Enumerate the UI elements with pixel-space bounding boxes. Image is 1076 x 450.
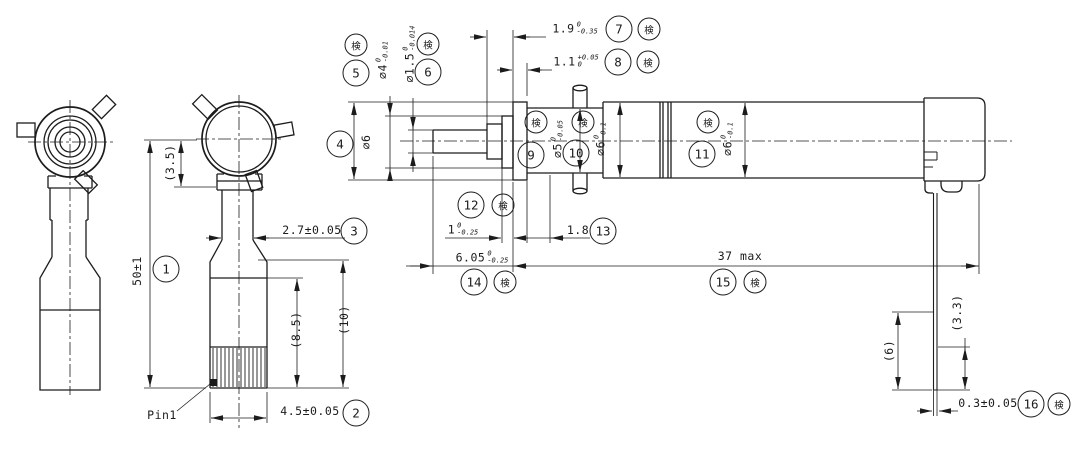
engineering-drawing-canvas: 50±1 (3.5) 2.7±0.05 4.5±0.05 (8.5) (10) …	[0, 0, 1076, 450]
side-view-short-tabs	[193, 95, 294, 192]
dim-dia4: ⌀40-0.01	[376, 41, 389, 79]
ref-dim-8-5: (8.5)	[290, 311, 302, 348]
balloon-11: 11	[689, 141, 716, 168]
balloon-12: 12	[458, 192, 485, 219]
balloon-3: 3	[341, 218, 368, 245]
pin1-marker	[210, 379, 217, 386]
balloon-15: 15	[710, 269, 737, 296]
dim-overall-length: 50±1	[131, 256, 143, 286]
dim-dia1-5: ⌀1.50-0.014	[403, 26, 416, 83]
balloon-6: 6	[415, 59, 442, 86]
balloon-5: 5	[343, 60, 370, 87]
dim-1: 10-0.25	[448, 223, 479, 236]
inspection-stamp-6: 検	[417, 33, 440, 56]
dim-1-9: 1.90-0.35	[552, 22, 597, 35]
balloon-4: 4	[327, 131, 354, 158]
dim-1-8: 1.8	[567, 224, 589, 236]
inspection-stamp-9: 検	[525, 111, 548, 134]
inspection-stamp-12: 検	[492, 194, 515, 217]
balloon-9: 9	[518, 142, 545, 169]
inspection-stamp-15: 検	[744, 271, 767, 294]
dim-0-3: 0.3±0.05	[958, 397, 1017, 409]
inspection-stamp-7: 検	[638, 18, 661, 41]
dim-6-05: 6.050-0.25	[456, 251, 509, 264]
lead-tab	[934, 193, 938, 390]
ref-dim-3-3: (3.3)	[951, 294, 963, 331]
dim-dia6-flange: ⌀6	[360, 135, 372, 150]
end-view	[17, 95, 116, 390]
end-view-tabs	[17, 95, 116, 193]
ref-dim-3-5: (3.5)	[164, 144, 176, 181]
dim-37-max: 37 max	[718, 250, 763, 262]
balloon-7: 7	[606, 16, 633, 43]
inspection-stamp-5: 検	[345, 34, 368, 57]
dim-dia6-mid: ⌀60-0.1	[594, 122, 607, 156]
dimension-lines	[144, 30, 979, 423]
pin1-label: Pin1	[147, 409, 177, 421]
balloon-2: 2	[343, 400, 370, 427]
inspection-stamp-8: 検	[637, 51, 660, 74]
inspection-stamp-14: 検	[494, 271, 517, 294]
balloon-1: 1	[153, 256, 180, 283]
dim-neck-width: 2.7±0.05	[282, 224, 341, 236]
inspection-stamp-16: 検	[1048, 393, 1071, 416]
inspection-stamp-10: 検	[572, 111, 595, 134]
balloon-16: 16	[1018, 391, 1045, 418]
balloon-8: 8	[605, 49, 632, 76]
balloon-13: 13	[590, 218, 617, 245]
balloon-10: 10	[563, 140, 590, 167]
ref-dim-6: (6)	[883, 340, 895, 362]
inspection-stamp-11: 検	[697, 111, 720, 134]
drawing-linework	[0, 0, 1076, 450]
dim-body-width: 4.5±0.05	[280, 405, 339, 417]
ref-dim-10: (10)	[338, 305, 350, 335]
dim-1-1: 1.1+0.050	[553, 55, 598, 68]
dim-dia6-rear: ⌀60-0.1	[721, 122, 734, 156]
balloon-14: 14	[461, 269, 488, 296]
